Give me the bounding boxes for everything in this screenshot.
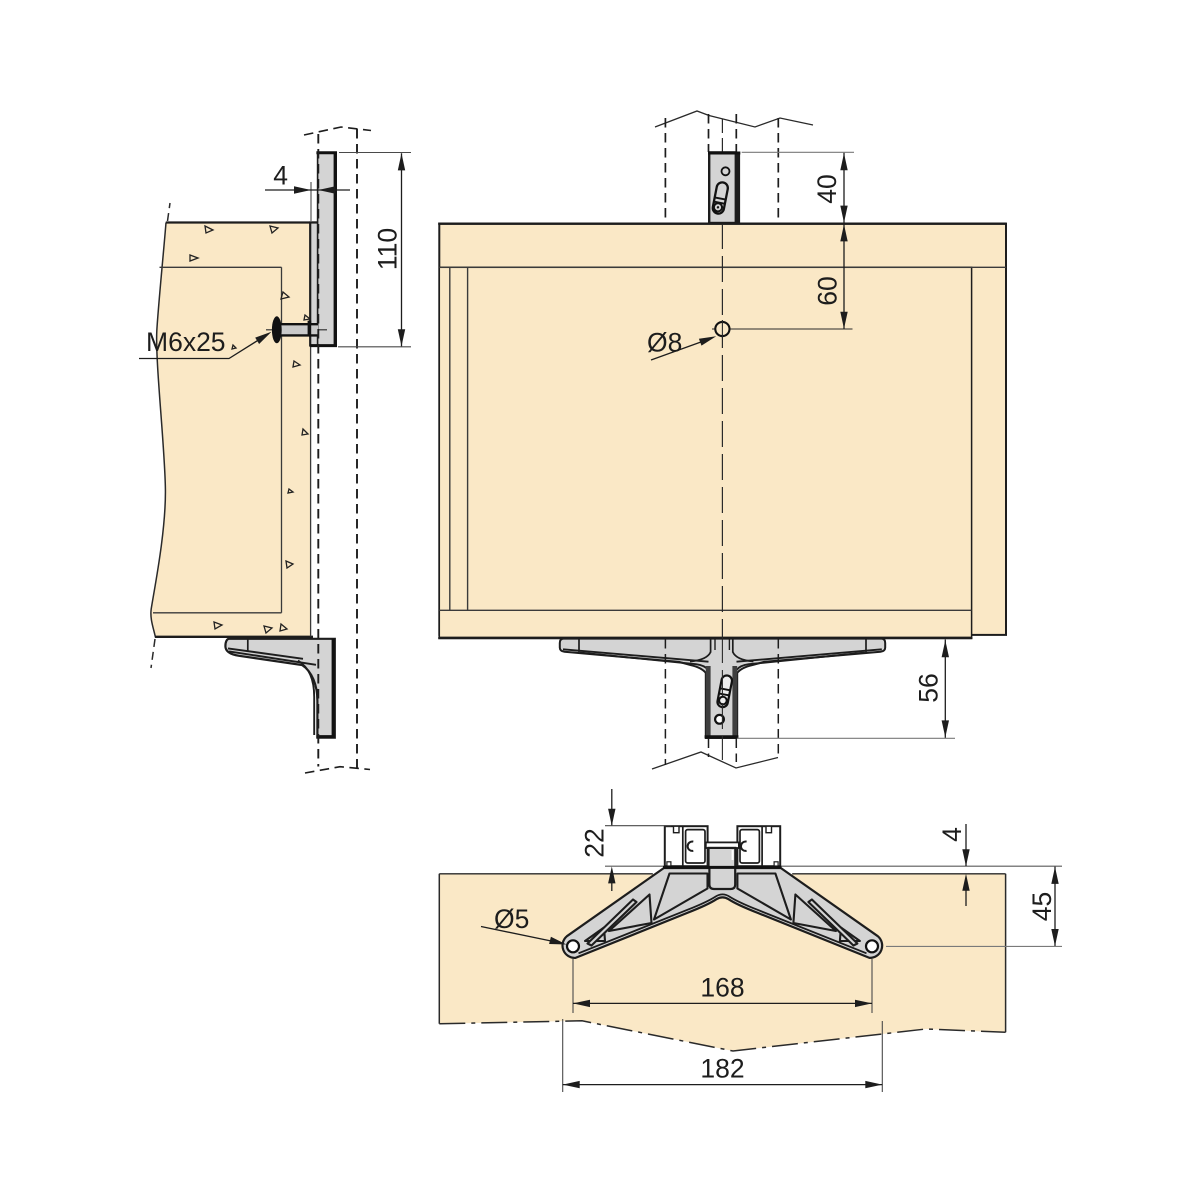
svg-text:168: 168 (700, 973, 744, 1003)
svg-text:60: 60 (813, 276, 843, 305)
svg-text:110: 110 (373, 228, 403, 270)
svg-text:56: 56 (914, 673, 944, 702)
svg-text:45: 45 (1027, 892, 1057, 921)
svg-text:182: 182 (700, 1054, 744, 1084)
svg-text:M6x25: M6x25 (146, 327, 226, 357)
svg-text:Ø5: Ø5 (494, 904, 529, 934)
svg-text:Ø8: Ø8 (647, 328, 682, 358)
svg-text:4: 4 (937, 827, 967, 842)
svg-text:22: 22 (580, 828, 610, 857)
svg-text:4: 4 (273, 161, 288, 191)
svg-text:40: 40 (812, 174, 842, 203)
